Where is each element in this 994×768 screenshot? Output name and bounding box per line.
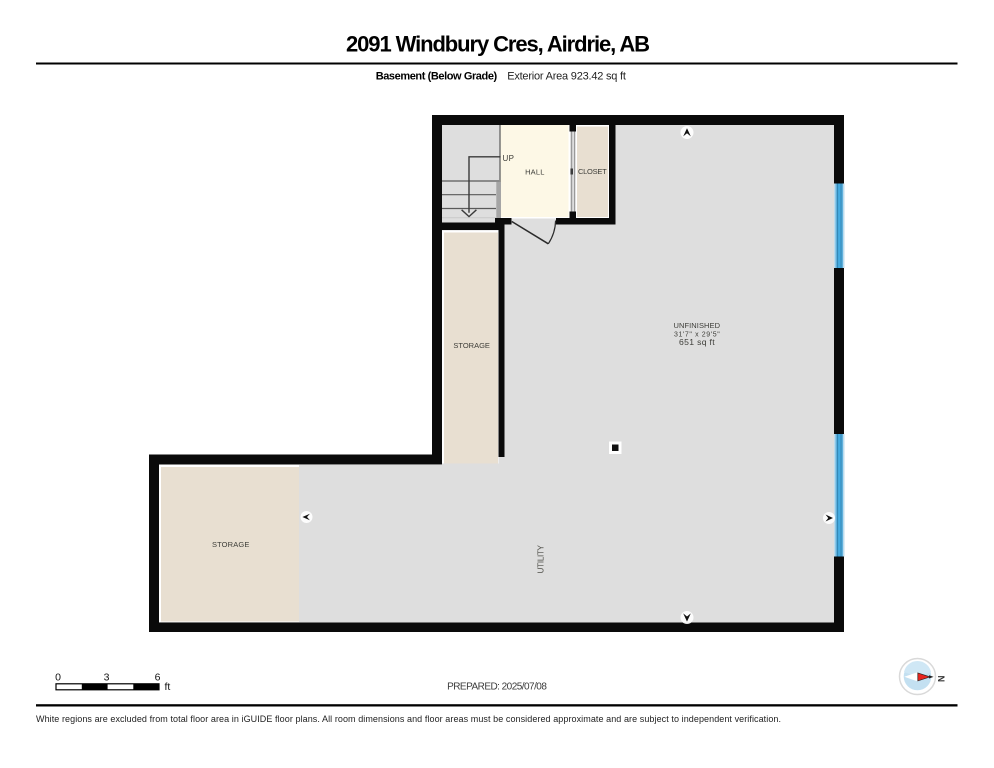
svg-text:UNFINISHED: UNFINISHED: [673, 321, 720, 330]
svg-text:N: N: [936, 676, 946, 683]
svg-text:Basement (Below Grade): Basement (Below Grade): [376, 70, 498, 82]
svg-text:0: 0: [55, 672, 61, 684]
svg-text:6: 6: [155, 672, 161, 684]
svg-text:2091 Windbury Cres, Airdrie, A: 2091 Windbury Cres, Airdrie, AB: [346, 32, 650, 57]
svg-text:STORAGE: STORAGE: [453, 341, 490, 350]
svg-text:3: 3: [104, 672, 110, 684]
svg-text:UP: UP: [503, 154, 515, 163]
svg-text:CLOSET: CLOSET: [578, 167, 607, 176]
svg-text:UTILITY: UTILITY: [537, 544, 546, 573]
svg-text:PREPARED: 2025/07/08: PREPARED: 2025/07/08: [447, 682, 547, 693]
svg-text:651 sq ft: 651 sq ft: [679, 338, 716, 347]
svg-text:White regions are excluded fro: White regions are excluded from total fl…: [36, 714, 781, 724]
svg-text:Exterior Area 923.42 sq ft: Exterior Area 923.42 sq ft: [507, 70, 626, 82]
svg-text:ft: ft: [165, 681, 171, 693]
svg-text:STORAGE: STORAGE: [212, 540, 250, 549]
svg-text:HALL: HALL: [525, 168, 545, 177]
